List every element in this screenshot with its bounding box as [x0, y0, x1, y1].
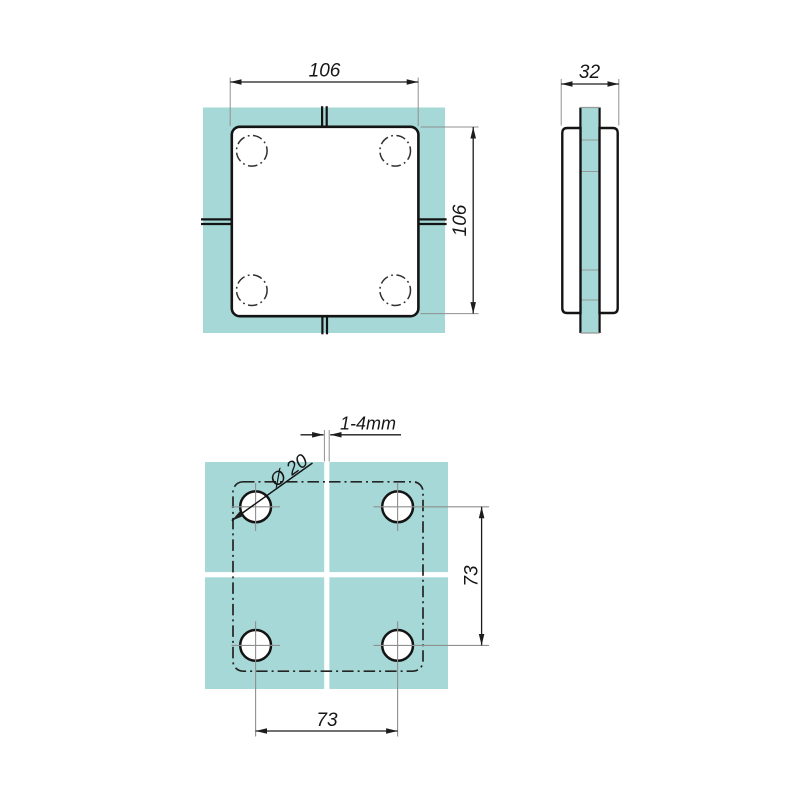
vertical-spacing-label: 73: [462, 565, 483, 587]
plan-height-label: 106: [450, 204, 471, 236]
glass-gap-dimension: 1-4mm: [301, 414, 402, 462]
hole-layout-view: Ø 20 1-4mm 73 73: [205, 414, 489, 737]
technical-drawing-canvas: 106 106: [0, 0, 800, 800]
side-view: 32: [561, 62, 619, 333]
vertical-spacing-dimension: 73: [462, 507, 483, 646]
plan-width-label: 106: [309, 61, 341, 82]
glass-gap-label: 1-4mm: [340, 414, 396, 434]
glass-edge-side: [580, 108, 599, 334]
horizontal-spacing-label: 73: [316, 710, 338, 731]
glass-gap-horizontal: [205, 572, 448, 577]
clamp-plate-plan: [232, 127, 419, 316]
clamp-plate-side-right: [600, 128, 618, 313]
plan-view: 106 106: [201, 61, 479, 335]
side-thickness-label: 32: [579, 62, 601, 83]
clamp-plate-side-left: [562, 128, 580, 313]
horizontal-spacing-dimension: 73: [256, 710, 398, 731]
glass-clamp-drawing: 106 106: [0, 0, 800, 800]
